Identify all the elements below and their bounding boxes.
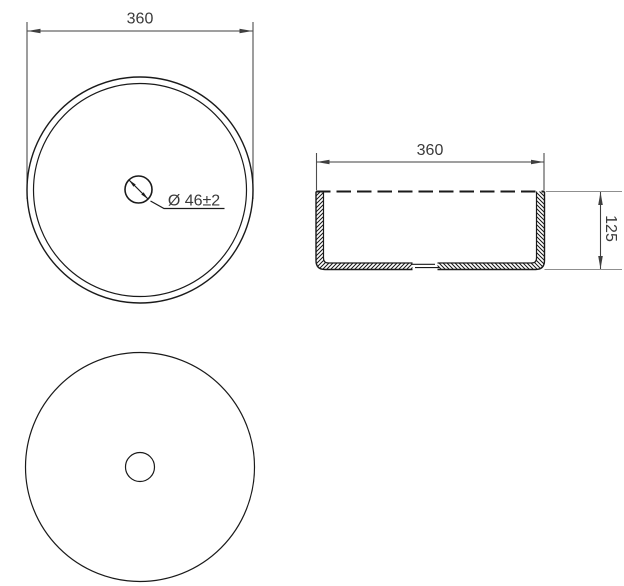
right-wall-inner-outline bbox=[438, 192, 537, 264]
left-wall-section-hatch bbox=[316, 192, 413, 270]
right-wall-section-hatch bbox=[438, 192, 545, 270]
height-dimension-label: 125 bbox=[602, 215, 619, 242]
top-width-dimension-label: 360 bbox=[127, 11, 154, 28]
outer-rim-circle bbox=[27, 77, 253, 303]
right-wall-outer-outline bbox=[438, 192, 545, 270]
drain-diameter-arrow bbox=[129, 180, 148, 199]
bottom-drain-circle bbox=[126, 453, 155, 482]
basin-dimension-drawing: 360 Ø 46±2 360 125 bbox=[0, 0, 624, 586]
inner-rim-circle bbox=[34, 84, 247, 297]
left-wall-inner-outline bbox=[324, 192, 413, 264]
side-width-dimension-label: 360 bbox=[417, 142, 444, 159]
left-wall-outer-outline bbox=[316, 192, 413, 270]
technical-drawing-canvas: 360 Ø 46±2 360 125 bbox=[0, 0, 624, 586]
bottom-outline-circle bbox=[26, 353, 255, 582]
bottom-view bbox=[26, 353, 255, 582]
top-view: 360 Ø 46±2 bbox=[27, 11, 253, 304]
side-section-view: 360 125 bbox=[316, 142, 622, 270]
drain-dimension-label: Ø 46±2 bbox=[168, 193, 220, 210]
